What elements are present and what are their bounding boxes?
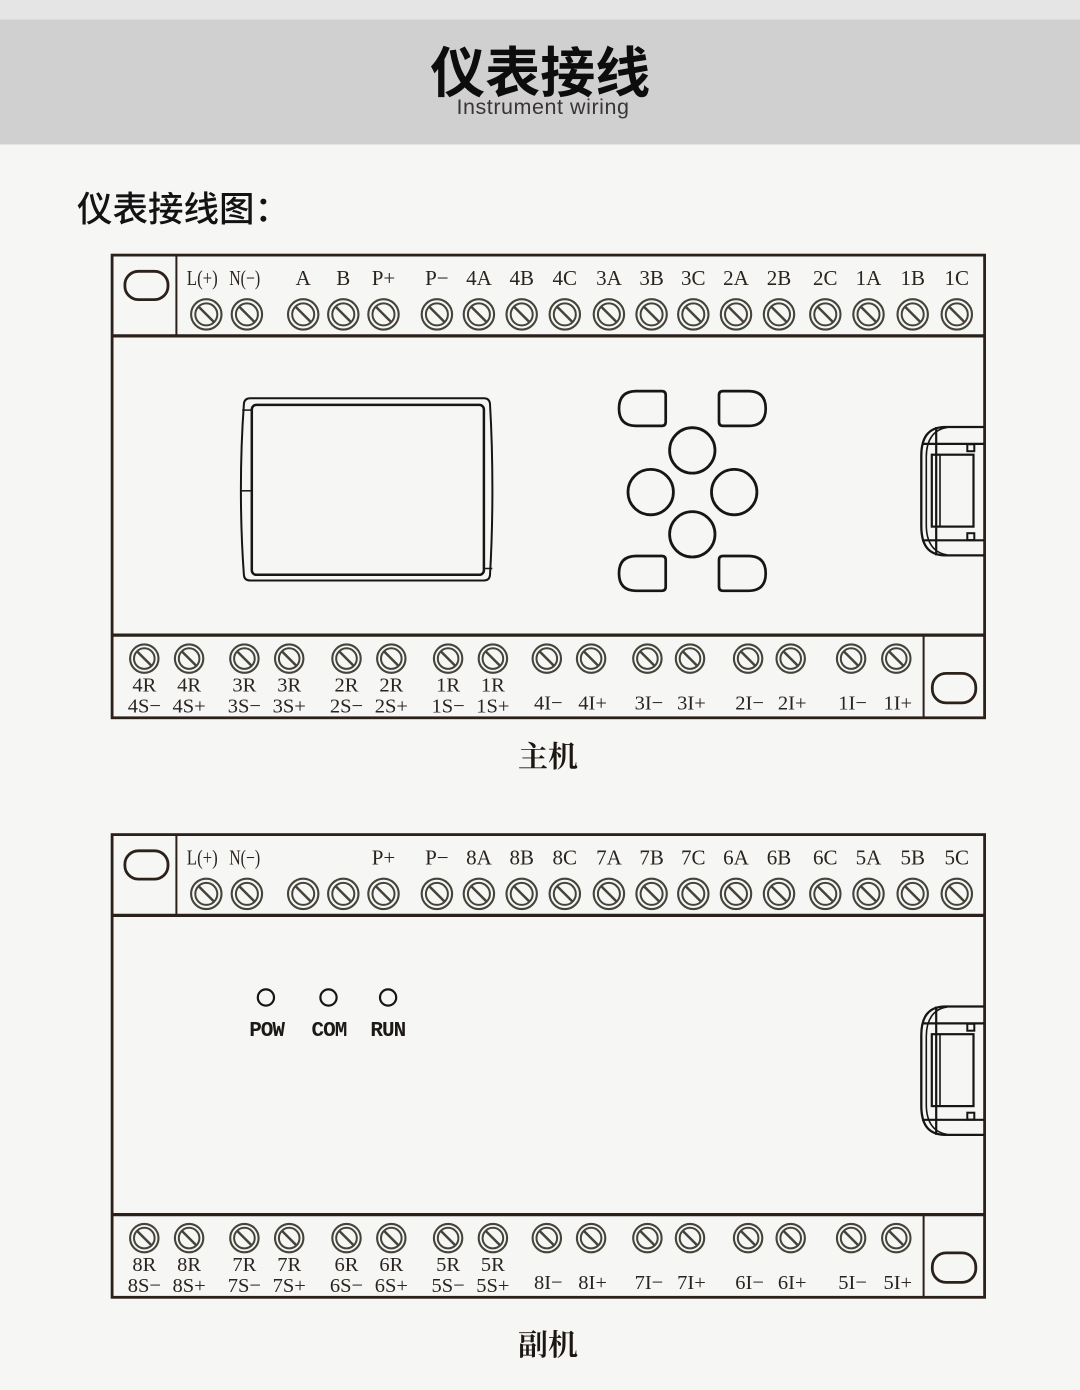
svg-text:3R: 3R: [232, 675, 256, 697]
svg-text:3S+: 3S+: [273, 696, 306, 718]
svg-text:5I−: 5I−: [838, 1272, 867, 1294]
svg-text:4I+: 4I+: [578, 693, 607, 715]
svg-text:N(−): N(−): [229, 845, 260, 869]
svg-text:POW: POW: [249, 1020, 285, 1043]
svg-text:A: A: [296, 266, 312, 290]
svg-text:3C: 3C: [681, 266, 706, 290]
svg-text:7R: 7R: [232, 1254, 256, 1276]
svg-text:7B: 7B: [639, 845, 664, 869]
svg-text:RUN: RUN: [370, 1020, 405, 1043]
svg-text:1I+: 1I+: [883, 693, 912, 715]
svg-text:6S+: 6S+: [375, 1275, 408, 1297]
svg-text:6R: 6R: [335, 1254, 359, 1276]
svg-text:7R: 7R: [277, 1254, 301, 1276]
svg-text:5C: 5C: [945, 845, 970, 869]
svg-text:5I+: 5I+: [883, 1272, 912, 1294]
svg-text:4B: 4B: [509, 266, 534, 290]
svg-text:7S+: 7S+: [273, 1275, 306, 1297]
svg-text:8I−: 8I−: [534, 1272, 563, 1294]
svg-text:3B: 3B: [639, 266, 664, 290]
svg-text:4A: 4A: [466, 266, 493, 290]
svg-text:6B: 6B: [767, 845, 792, 869]
svg-text:6I−: 6I−: [735, 1272, 764, 1294]
svg-text:6C: 6C: [813, 845, 838, 869]
svg-text:5S+: 5S+: [476, 1275, 509, 1297]
svg-text:P+: P+: [372, 845, 396, 869]
svg-text:COM: COM: [311, 1020, 346, 1043]
svg-text:6I+: 6I+: [778, 1272, 807, 1294]
svg-text:5S−: 5S−: [431, 1275, 464, 1297]
svg-text:5R: 5R: [481, 1254, 505, 1276]
svg-text:8C: 8C: [553, 845, 578, 869]
svg-text:4C: 4C: [553, 266, 578, 290]
svg-text:2A: 2A: [723, 266, 750, 290]
svg-text:4S−: 4S−: [128, 696, 161, 718]
svg-text:2I+: 2I+: [778, 693, 807, 715]
svg-text:3S−: 3S−: [228, 696, 261, 718]
svg-text:3I−: 3I−: [635, 693, 664, 715]
svg-text:4R: 4R: [132, 675, 156, 697]
svg-text:8B: 8B: [509, 845, 534, 869]
svg-text:1S+: 1S+: [476, 696, 509, 718]
svg-text:6A: 6A: [723, 845, 750, 869]
svg-text:8S+: 8S+: [172, 1275, 205, 1297]
svg-text:2I−: 2I−: [735, 693, 764, 715]
svg-text:8R: 8R: [177, 1254, 201, 1276]
svg-text:2R: 2R: [379, 675, 403, 697]
svg-text:1I−: 1I−: [838, 693, 867, 715]
svg-text:8A: 8A: [466, 845, 493, 869]
svg-text:1S−: 1S−: [431, 696, 464, 718]
svg-text:1B: 1B: [900, 266, 925, 290]
svg-text:2C: 2C: [813, 266, 838, 290]
svg-text:3I+: 3I+: [677, 693, 706, 715]
svg-text:1A: 1A: [856, 266, 883, 290]
svg-text:N(−): N(−): [229, 266, 260, 290]
svg-text:3R: 3R: [277, 675, 301, 697]
svg-text:P−: P−: [425, 845, 449, 869]
svg-text:7I−: 7I−: [635, 1272, 664, 1294]
svg-text:6R: 6R: [379, 1254, 403, 1276]
svg-text:2S−: 2S−: [330, 696, 363, 718]
svg-text:4R: 4R: [177, 675, 201, 697]
svg-text:L(+): L(+): [187, 266, 218, 290]
svg-text:8R: 8R: [132, 1254, 156, 1276]
svg-text:5R: 5R: [436, 1254, 460, 1276]
svg-text:1C: 1C: [945, 266, 970, 290]
svg-text:7S−: 7S−: [228, 1275, 261, 1297]
svg-text:P+: P+: [372, 266, 396, 290]
svg-text:P−: P−: [425, 266, 449, 290]
svg-text:5A: 5A: [856, 845, 883, 869]
svg-text:1R: 1R: [481, 675, 505, 697]
svg-text:7C: 7C: [681, 845, 706, 869]
svg-text:8I+: 8I+: [578, 1272, 607, 1294]
svg-text:5B: 5B: [900, 845, 925, 869]
svg-text:1R: 1R: [436, 675, 460, 697]
svg-text:L(+): L(+): [187, 845, 218, 869]
svg-text:2B: 2B: [767, 266, 792, 290]
svg-text:Instrument wiring: Instrument wiring: [456, 95, 629, 119]
svg-text:2R: 2R: [335, 675, 359, 697]
svg-text:7A: 7A: [596, 845, 623, 869]
svg-text:7I+: 7I+: [677, 1272, 706, 1294]
svg-text:B: B: [336, 266, 350, 290]
svg-text:4S+: 4S+: [172, 696, 205, 718]
svg-text:2S+: 2S+: [375, 696, 408, 718]
svg-text:3A: 3A: [596, 266, 623, 290]
svg-text:8S−: 8S−: [128, 1275, 161, 1297]
svg-text:6S−: 6S−: [330, 1275, 363, 1297]
svg-text:4I−: 4I−: [534, 693, 563, 715]
